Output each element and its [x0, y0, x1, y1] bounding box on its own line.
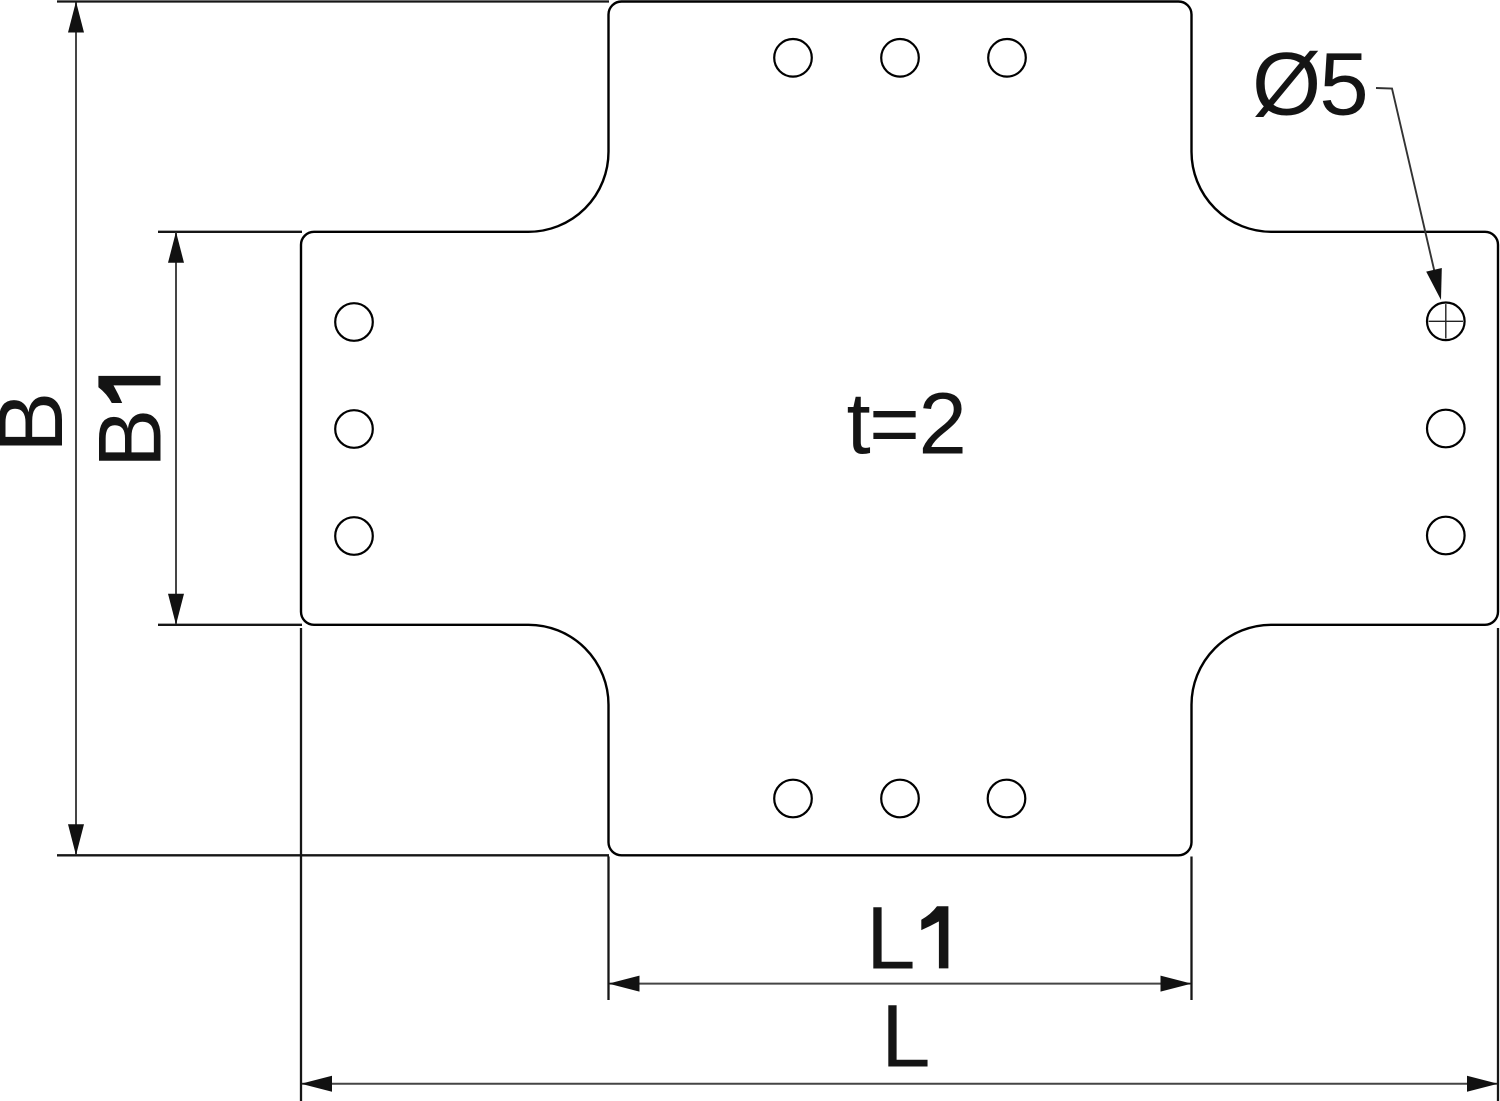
svg-text:Ø5: Ø5: [1252, 34, 1367, 134]
svg-text:L: L: [866, 888, 916, 988]
svg-text:t=2: t=2: [847, 376, 966, 473]
svg-text:B: B: [0, 392, 82, 453]
svg-text:B: B: [80, 409, 180, 468]
svg-text:L: L: [881, 986, 931, 1086]
